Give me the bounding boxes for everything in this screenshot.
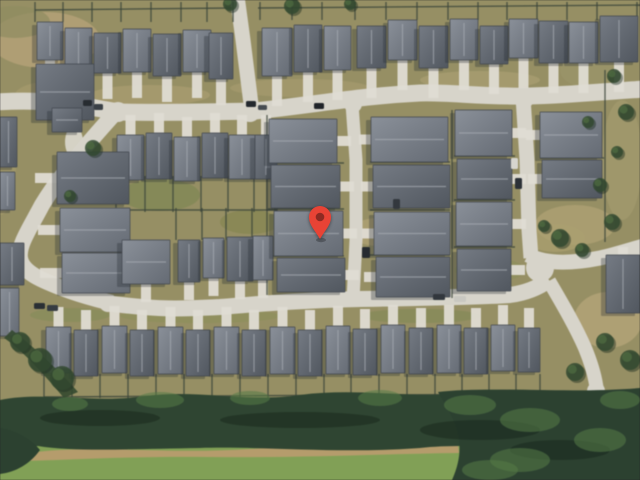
satellite-map[interactable] [0, 0, 640, 480]
map-viewport[interactable] [0, 0, 640, 480]
